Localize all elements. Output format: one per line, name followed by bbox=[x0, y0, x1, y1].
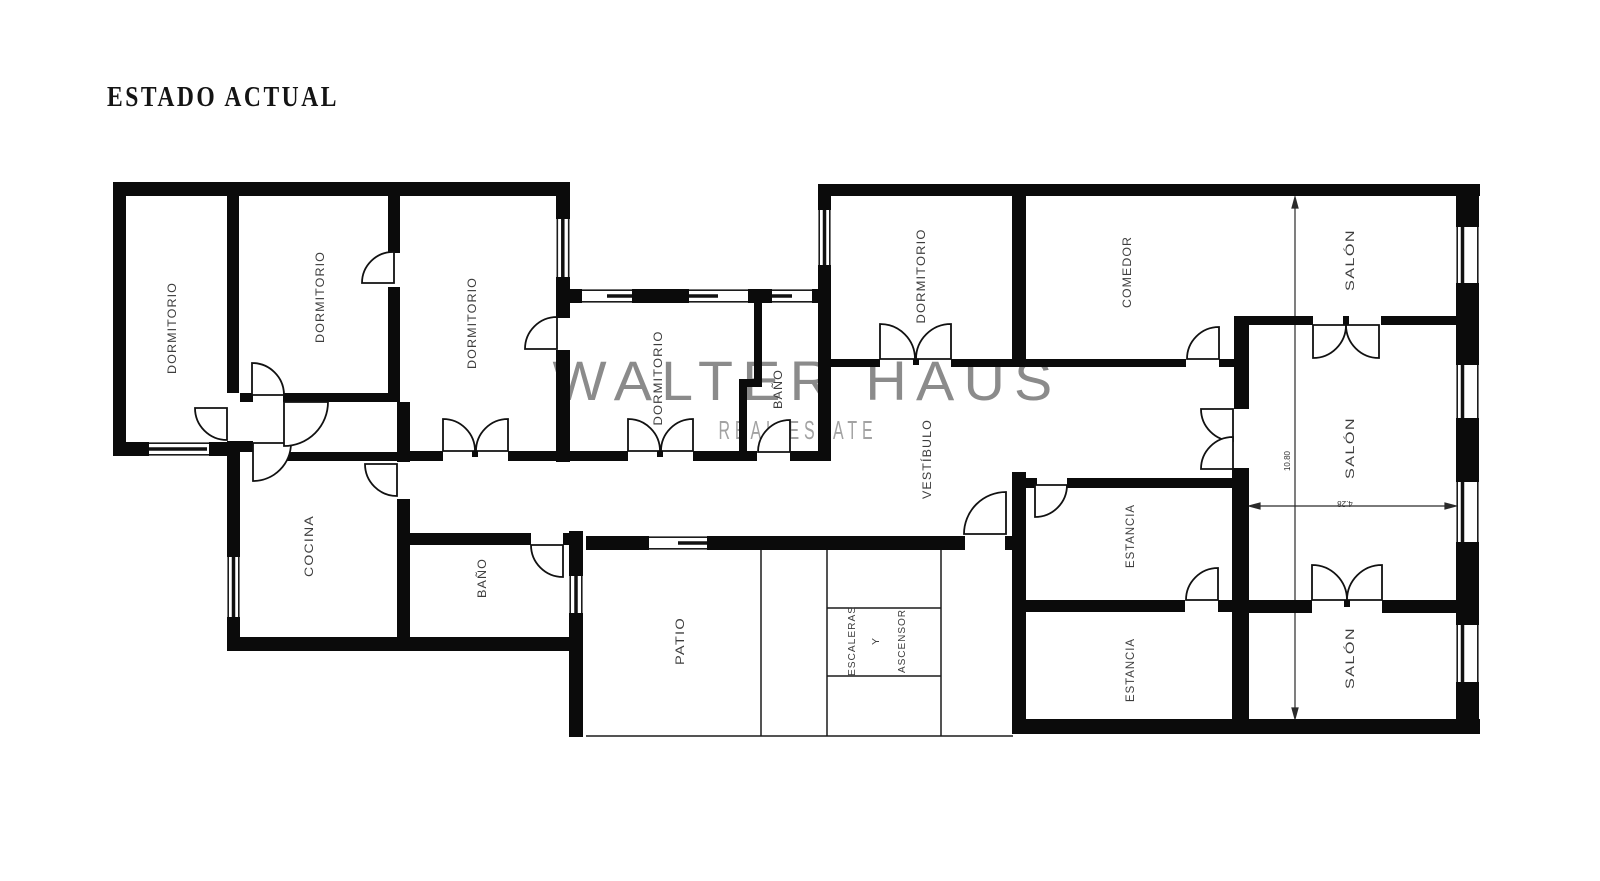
svg-text:COCINA: COCINA bbox=[304, 515, 316, 577]
svg-text:DORMITORIO: DORMITORIO bbox=[167, 282, 179, 374]
svg-text:DORMITORIO: DORMITORIO bbox=[315, 251, 327, 343]
svg-text:BAÑO: BAÑO bbox=[772, 369, 785, 409]
svg-text:SALÓN: SALÓN bbox=[1344, 627, 1357, 689]
svg-text:Y: Y bbox=[870, 637, 882, 645]
svg-text:PATIO: PATIO bbox=[675, 617, 687, 665]
svg-text:DORMITORIO: DORMITORIO bbox=[916, 229, 928, 324]
svg-text:ESTANCIA: ESTANCIA bbox=[1125, 638, 1137, 702]
svg-text:4.28: 4.28 bbox=[1337, 499, 1353, 508]
svg-text:COMEDOR: COMEDOR bbox=[1122, 236, 1134, 308]
svg-text:SALÓN: SALÓN bbox=[1344, 417, 1357, 479]
svg-text:ESTANCIA: ESTANCIA bbox=[1125, 504, 1137, 568]
svg-text:WALTER HAUS: WALTER HAUS bbox=[553, 349, 1062, 412]
svg-text:VESTÍBULO: VESTÍBULO bbox=[921, 419, 934, 499]
svg-text:DORMITORIO: DORMITORIO bbox=[467, 277, 479, 369]
svg-text:ESCALERAS: ESCALERAS bbox=[846, 606, 858, 676]
svg-text:DORMITORIO: DORMITORIO bbox=[653, 331, 665, 426]
svg-text:ASCENSOR: ASCENSOR bbox=[896, 609, 908, 673]
svg-text:SALÓN: SALÓN bbox=[1344, 229, 1357, 291]
svg-text:BAÑO: BAÑO bbox=[476, 558, 489, 598]
svg-text:10.80: 10.80 bbox=[1283, 450, 1292, 471]
svg-text:ESTADO ACTUAL: ESTADO ACTUAL bbox=[107, 82, 339, 113]
